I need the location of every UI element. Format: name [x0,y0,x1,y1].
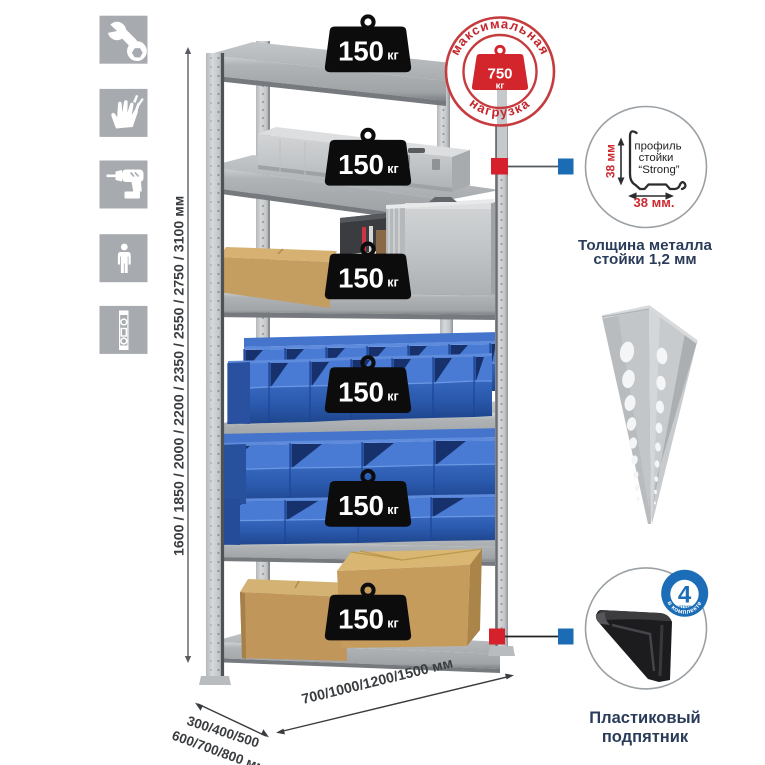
svg-text:150: 150 [338,376,384,407]
svg-text:кг: кг [387,617,398,631]
svg-text:38 мм: 38 мм [604,144,618,178]
svg-text:“Strong”: “Strong” [638,164,679,176]
svg-text:150: 150 [338,490,384,521]
svg-text:профиль: профиль [634,141,681,153]
svg-text:кг: кг [387,503,398,517]
svg-text:1600 / 1850 / 2000 / 2200 / 23: 1600 / 1850 / 2000 / 2200 / 2350 / 2550 … [172,196,188,556]
svg-text:Пластиковый: Пластиковый [589,709,700,727]
svg-text:подпятник: подпятник [602,728,689,746]
svg-text:стойки: стойки [639,152,674,164]
svg-text:кг: кг [496,81,505,92]
svg-text:стойки 1,2 мм: стойки 1,2 мм [593,251,696,268]
svg-text:кг: кг [387,276,398,290]
svg-text:38 мм.: 38 мм. [634,195,675,210]
svg-text:кг: кг [387,49,398,63]
svg-text:150: 150 [338,36,384,67]
svg-text:кг: кг [387,162,398,176]
svg-text:150: 150 [338,263,384,294]
svg-text:кг: кг [387,389,398,403]
svg-text:150: 150 [338,149,384,180]
svg-text:150: 150 [338,604,384,635]
